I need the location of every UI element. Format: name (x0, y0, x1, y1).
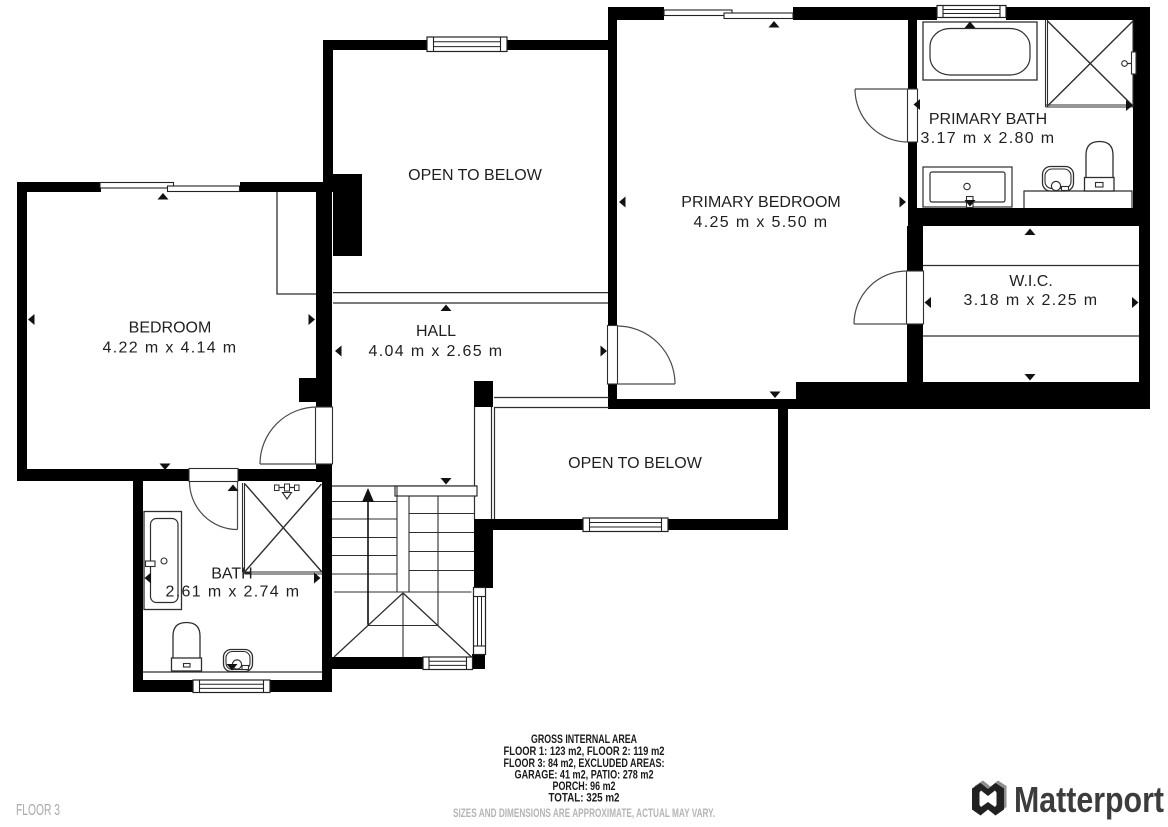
svg-text:PRIMARY BATH: PRIMARY BATH (929, 111, 1047, 128)
svg-text:TOTAL: 325 m2: TOTAL: 325 m2 (549, 791, 620, 805)
svg-text:FLOOR 3: FLOOR 3 (16, 802, 60, 819)
svg-text:3.17 m x 2.80 m: 3.17 m x 2.80 m (921, 130, 1056, 147)
svg-text:BATH: BATH (211, 566, 252, 583)
svg-text:4.22 m x 4.14 m: 4.22 m x 4.14 m (103, 340, 238, 357)
svg-text:OPEN TO BELOW: OPEN TO BELOW (568, 455, 703, 472)
svg-text:3.18 m x 2.25 m: 3.18 m x 2.25 m (964, 292, 1099, 309)
svg-text:4.25 m x 5.50 m: 4.25 m x 5.50 m (694, 214, 829, 231)
svg-text:PRIMARY BEDROOM: PRIMARY BEDROOM (681, 194, 840, 211)
svg-text:W.I.C.: W.I.C. (1009, 273, 1053, 290)
svg-text:SIZES AND DIMENSIONS ARE APPRO: SIZES AND DIMENSIONS ARE APPROXIMATE, AC… (453, 806, 715, 820)
svg-text:BEDROOM: BEDROOM (129, 320, 212, 337)
svg-text:2.61 m x 2.74 m: 2.61 m x 2.74 m (166, 584, 301, 601)
svg-text:Matterport: Matterport (1014, 779, 1164, 820)
svg-text:4.04 m x 2.65 m: 4.04 m x 2.65 m (369, 343, 504, 360)
svg-text:HALL: HALL (416, 323, 456, 340)
svg-text:OPEN TO BELOW: OPEN TO BELOW (408, 167, 543, 184)
